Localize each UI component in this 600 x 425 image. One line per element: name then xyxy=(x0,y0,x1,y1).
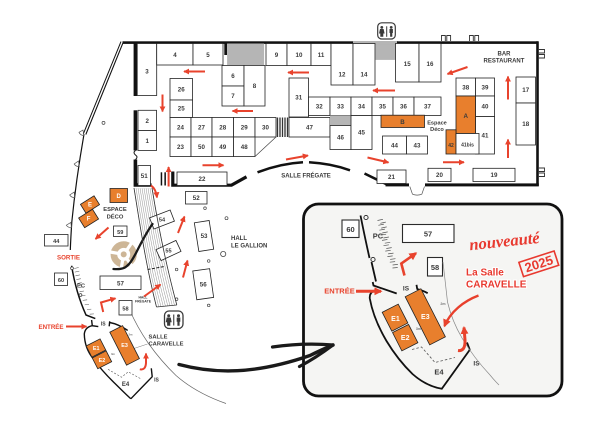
svg-text:45: 45 xyxy=(358,130,365,137)
svg-text:33: 33 xyxy=(337,104,344,111)
svg-text:29: 29 xyxy=(241,125,248,132)
svg-text:LE GALLION: LE GALLION xyxy=(231,243,267,249)
svg-text:26: 26 xyxy=(178,87,185,94)
svg-text:30: 30 xyxy=(262,125,269,132)
svg-text:58: 58 xyxy=(431,263,439,272)
svg-text:IS: IS xyxy=(101,321,106,327)
svg-text:E1: E1 xyxy=(391,316,400,323)
svg-text:Espace: Espace xyxy=(427,121,447,127)
svg-text:54: 54 xyxy=(159,218,166,224)
svg-text:15: 15 xyxy=(404,61,411,68)
svg-text:42: 42 xyxy=(448,143,454,149)
svg-text:40: 40 xyxy=(482,104,489,111)
svg-text:49: 49 xyxy=(219,144,226,151)
svg-text:16: 16 xyxy=(427,61,434,68)
svg-text:60: 60 xyxy=(346,225,354,234)
svg-text:F: F xyxy=(87,217,91,223)
svg-text:2m: 2m xyxy=(128,332,133,336)
svg-text:57: 57 xyxy=(117,281,124,288)
svg-text:19: 19 xyxy=(491,172,498,179)
svg-text:E3: E3 xyxy=(121,343,128,349)
svg-text:A: A xyxy=(463,113,468,120)
svg-text:8: 8 xyxy=(253,83,257,90)
svg-text:D: D xyxy=(117,194,122,200)
svg-text:E2: E2 xyxy=(99,358,106,364)
svg-text:25: 25 xyxy=(178,106,185,113)
svg-text:11: 11 xyxy=(318,52,325,59)
svg-text:55: 55 xyxy=(165,249,171,255)
svg-text:ENTRÉE: ENTRÉE xyxy=(324,287,354,296)
svg-text:48: 48 xyxy=(241,144,248,151)
svg-text:SALLE FRÉGATE: SALLE FRÉGATE xyxy=(281,171,331,179)
svg-text:La Salle: La Salle xyxy=(466,268,504,279)
svg-text:47: 47 xyxy=(306,125,313,132)
svg-text:36: 36 xyxy=(400,104,407,111)
svg-text:50: 50 xyxy=(198,144,205,151)
svg-text:ESPACE: ESPACE xyxy=(103,207,127,213)
svg-text:41bis: 41bis xyxy=(461,142,474,148)
svg-text:2: 2 xyxy=(145,118,149,125)
svg-text:SALLE: SALLE xyxy=(149,335,168,341)
svg-text:3m: 3m xyxy=(111,352,116,356)
svg-text:HALL: HALL xyxy=(231,236,247,242)
svg-text:27: 27 xyxy=(198,125,205,132)
svg-text:E1: E1 xyxy=(93,346,100,352)
svg-text:43: 43 xyxy=(414,143,421,150)
svg-text:34: 34 xyxy=(358,104,365,111)
svg-text:RESTAURANT: RESTAURANT xyxy=(484,59,525,65)
svg-text:E2: E2 xyxy=(401,335,410,342)
svg-text:59: 59 xyxy=(117,230,123,236)
svg-text:9: 9 xyxy=(275,52,279,59)
svg-text:58: 58 xyxy=(122,307,128,313)
svg-text:SORTIE: SORTIE xyxy=(57,255,80,262)
svg-text:39: 39 xyxy=(482,85,489,92)
svg-text:CARAVELLE: CARAVELLE xyxy=(466,280,527,291)
svg-text:28: 28 xyxy=(219,125,226,132)
svg-text:37: 37 xyxy=(424,104,431,111)
svg-text:31: 31 xyxy=(295,95,302,102)
svg-text:E4: E4 xyxy=(434,368,444,377)
svg-text:5: 5 xyxy=(206,52,210,59)
svg-text:Déco: Déco xyxy=(430,127,444,133)
svg-text:22: 22 xyxy=(199,176,206,183)
svg-text:1: 1 xyxy=(145,138,149,145)
svg-text:56: 56 xyxy=(200,281,207,288)
svg-text:23: 23 xyxy=(177,144,184,151)
svg-text:20: 20 xyxy=(436,172,443,179)
svg-text:PC: PC xyxy=(77,284,86,290)
svg-text:DÉCO: DÉCO xyxy=(107,213,124,221)
svg-text:46: 46 xyxy=(337,135,344,142)
svg-text:FRÉGATE: FRÉGATE xyxy=(135,298,152,303)
svg-text:IS: IS xyxy=(403,286,410,293)
svg-text:6: 6 xyxy=(231,73,235,80)
svg-text:60: 60 xyxy=(58,278,64,284)
svg-text:52: 52 xyxy=(193,195,200,202)
svg-text:E3: E3 xyxy=(421,314,430,321)
svg-text:44: 44 xyxy=(53,239,60,245)
svg-text:53: 53 xyxy=(201,233,208,240)
svg-text:E: E xyxy=(88,203,92,209)
svg-text:B: B xyxy=(400,119,405,126)
svg-text:24: 24 xyxy=(177,125,184,132)
svg-text:57: 57 xyxy=(424,230,432,239)
svg-text:IS: IS xyxy=(154,377,159,383)
svg-text:2m: 2m xyxy=(440,302,445,306)
svg-text:4: 4 xyxy=(173,52,177,59)
svg-text:35: 35 xyxy=(379,104,386,111)
svg-text:38: 38 xyxy=(462,85,469,92)
svg-text:PC: PC xyxy=(373,232,384,241)
svg-text:10: 10 xyxy=(296,52,303,59)
svg-text:BAR: BAR xyxy=(498,52,512,58)
svg-text:12: 12 xyxy=(339,72,346,79)
svg-text:41: 41 xyxy=(482,133,489,140)
svg-text:3m: 3m xyxy=(416,327,421,331)
svg-text:14: 14 xyxy=(361,72,368,79)
svg-text:7: 7 xyxy=(231,93,235,100)
svg-text:17: 17 xyxy=(522,87,529,94)
svg-text:44: 44 xyxy=(391,143,398,150)
svg-text:18: 18 xyxy=(522,121,529,128)
svg-text:51: 51 xyxy=(141,173,148,180)
svg-text:E4: E4 xyxy=(122,382,130,388)
svg-text:32: 32 xyxy=(316,104,323,111)
svg-text:3: 3 xyxy=(145,69,149,76)
svg-text:IS: IS xyxy=(473,360,480,367)
svg-text:21: 21 xyxy=(388,174,395,181)
svg-text:CARAVELLE: CARAVELLE xyxy=(149,342,184,348)
svg-text:ENTRÉE: ENTRÉE xyxy=(38,323,63,331)
